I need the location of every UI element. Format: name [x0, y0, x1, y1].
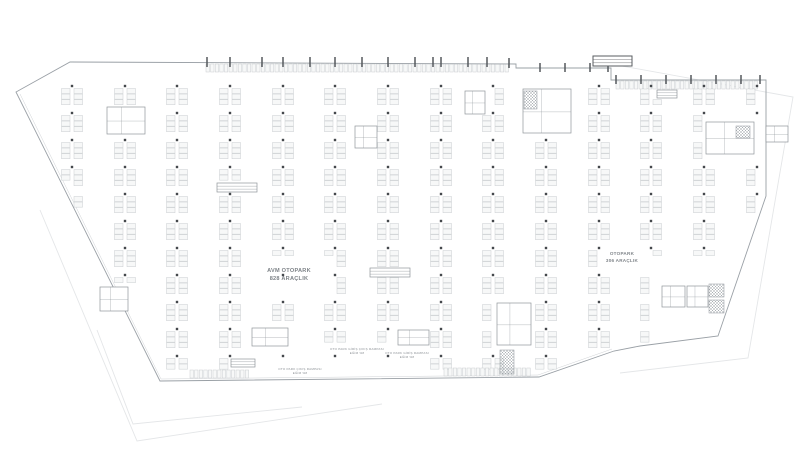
plan-labels: AVM OTOPARK 828 ARAÇLIK OTOPARK 306 ARAÇ… — [267, 251, 638, 375]
otopark-capacity-label: 306 ARAÇLIK — [606, 258, 639, 263]
avm-capacity-label: 828 ARAÇLIK — [270, 276, 309, 282]
building-outline-layer — [16, 57, 766, 381]
ramp-c-annotation-line2: EĞİM %8 — [293, 370, 308, 375]
ramp-b-annotation-line2: EĞİM %8 — [400, 354, 415, 359]
parking-floorplan-svg: AVM OTOPARK 828 ARAÇLIK OTOPARK 306 ARAÇ… — [0, 0, 800, 469]
ramp-a-annotation-line2: EĞİM %8 — [350, 350, 365, 355]
drawing-sheet: AVM OTOPARK 828 ARAÇLIK OTOPARK 306 ARAÇ… — [0, 0, 800, 469]
otopark-label: OTOPARK — [610, 251, 635, 256]
avm-otopark-label: AVM OTOPARK — [267, 268, 311, 274]
